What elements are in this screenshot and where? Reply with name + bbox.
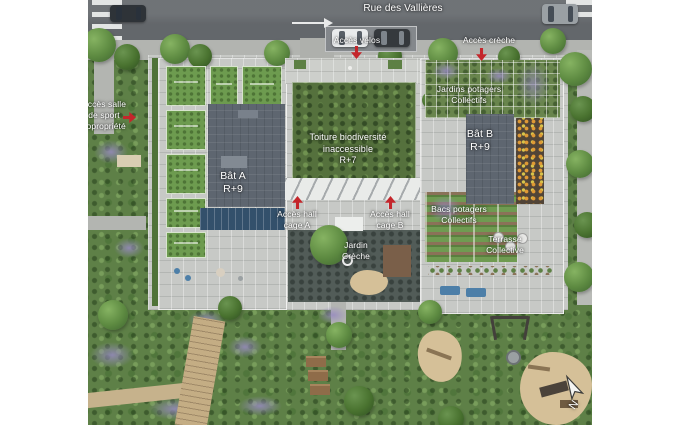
lounger (440, 286, 460, 295)
picnic-table (306, 356, 326, 367)
access-salle-sport-label: Accès salle de sport copropriété (88, 99, 126, 132)
parasol (216, 268, 225, 277)
terrasse-collective-label: Terrasse Collective (486, 234, 524, 256)
garden-plot (166, 110, 206, 150)
boardwalk (175, 316, 226, 425)
picnic-table (310, 384, 330, 395)
tree (188, 44, 212, 68)
flower-patch (516, 62, 550, 106)
hedge-planter (388, 60, 402, 69)
bacs-potagers-label: Bacs potagers Collectifs (431, 204, 487, 226)
flower-patch (228, 336, 262, 358)
bat-b-label: Bât B R+9 (467, 128, 493, 155)
biodiversity-roof-label: Toiture biodiversité inaccessible R+7 (309, 132, 386, 167)
hedge-planter (294, 60, 306, 69)
garden-bench (117, 155, 141, 167)
lounger (466, 288, 486, 297)
aerial-render: Rue des Vallières Accès vélos Accès crèc… (88, 0, 592, 425)
tree (540, 28, 566, 54)
flower-patch (486, 68, 512, 84)
street-name: Rue des Vallières (363, 3, 442, 16)
tree (438, 406, 464, 425)
flower-patch (238, 396, 282, 416)
swing-leg (490, 316, 497, 340)
tree (418, 300, 442, 324)
hall-a-label: Accès hall cage A (277, 209, 317, 231)
tree (326, 322, 352, 348)
van (110, 5, 146, 22)
solar-panels (200, 208, 285, 230)
play-structure (383, 245, 411, 277)
garden-plot (166, 154, 206, 194)
garden-plot (166, 232, 206, 258)
swing-leg (523, 316, 530, 340)
swing-bar (492, 316, 528, 319)
flower-patch (318, 306, 348, 324)
van-gray (542, 4, 578, 24)
tree (344, 386, 374, 416)
tree (566, 150, 592, 178)
entrance-canopy (285, 178, 420, 200)
hall-b-label: Accès hall cage B (370, 209, 410, 231)
north-arrow-icon (556, 374, 590, 404)
picnic-table (308, 370, 328, 381)
terrace-furniture (238, 276, 243, 281)
garden-plot (166, 66, 206, 106)
planter-row (428, 266, 556, 275)
street-direction-arrow (292, 18, 334, 28)
bat-a-label: Bât A R+9 (220, 170, 246, 197)
roof-ac-unit (221, 156, 247, 168)
flower-boxes (516, 118, 544, 204)
terrace-furniture (348, 66, 352, 70)
flower-patch (90, 342, 134, 368)
site-plan-image: Rue des Vallières Accès vélos Accès crèc… (0, 0, 680, 425)
parasol (174, 268, 180, 274)
access-velos-label: Accès vélos (334, 35, 380, 46)
tree (114, 44, 140, 70)
tree (558, 52, 592, 86)
garden-path-horizontal (88, 216, 146, 230)
tree (218, 296, 242, 320)
tree (98, 300, 128, 330)
tree (160, 34, 190, 64)
spinner (506, 350, 521, 365)
jardins-potagers-label: Jardins potagers Collectifs (437, 84, 501, 106)
flower-patch (114, 238, 144, 258)
access-creche-label: Accès crèche (463, 35, 515, 46)
parasol (185, 275, 191, 281)
roof-vent (238, 110, 258, 118)
tree (570, 96, 592, 122)
flower-patch (432, 62, 460, 80)
jardin-creche-label: Jardin Crèche (342, 240, 370, 262)
tree (564, 262, 592, 292)
